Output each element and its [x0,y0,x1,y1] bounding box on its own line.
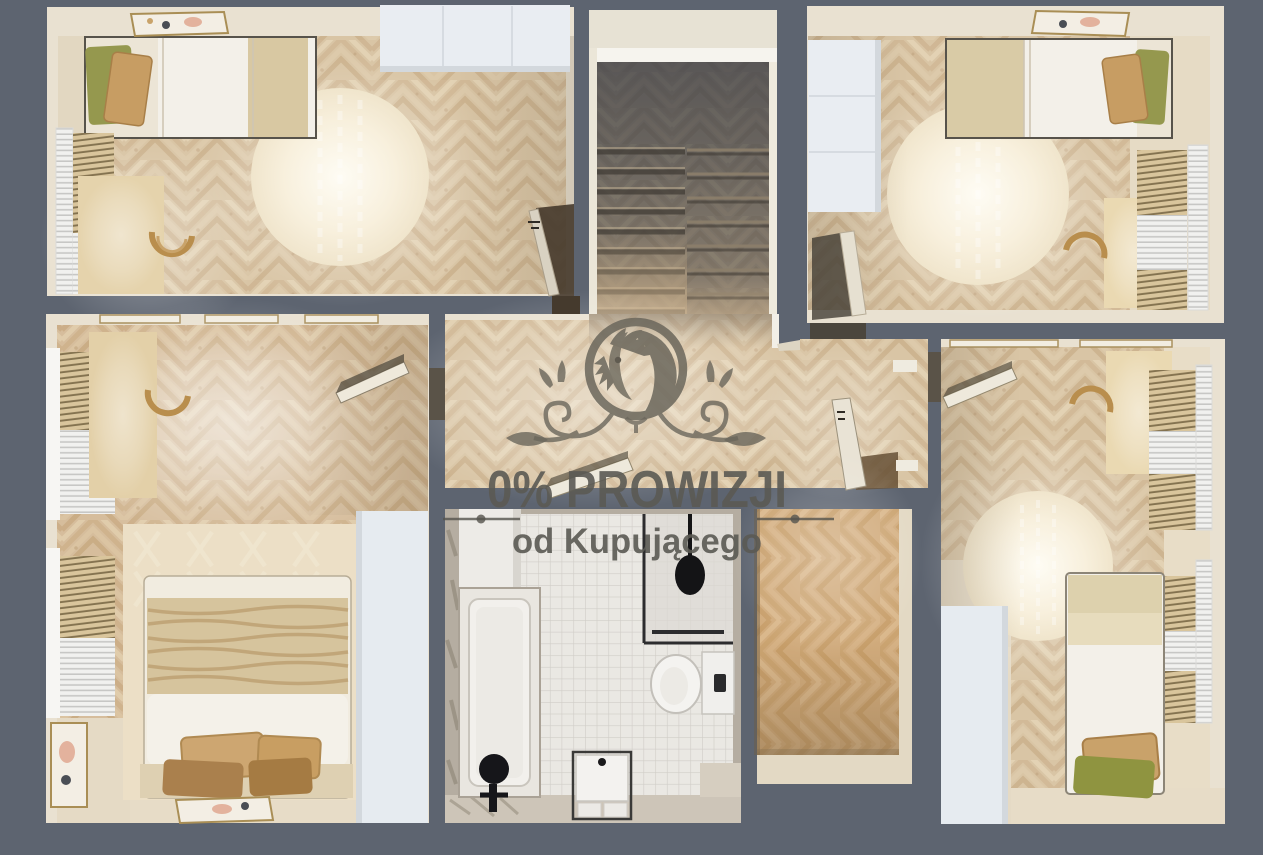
svg-text:od Kupującego: od Kupującego [512,522,762,561]
svg-text:0% PROWIZJI: 0% PROWIZJI [487,461,787,519]
